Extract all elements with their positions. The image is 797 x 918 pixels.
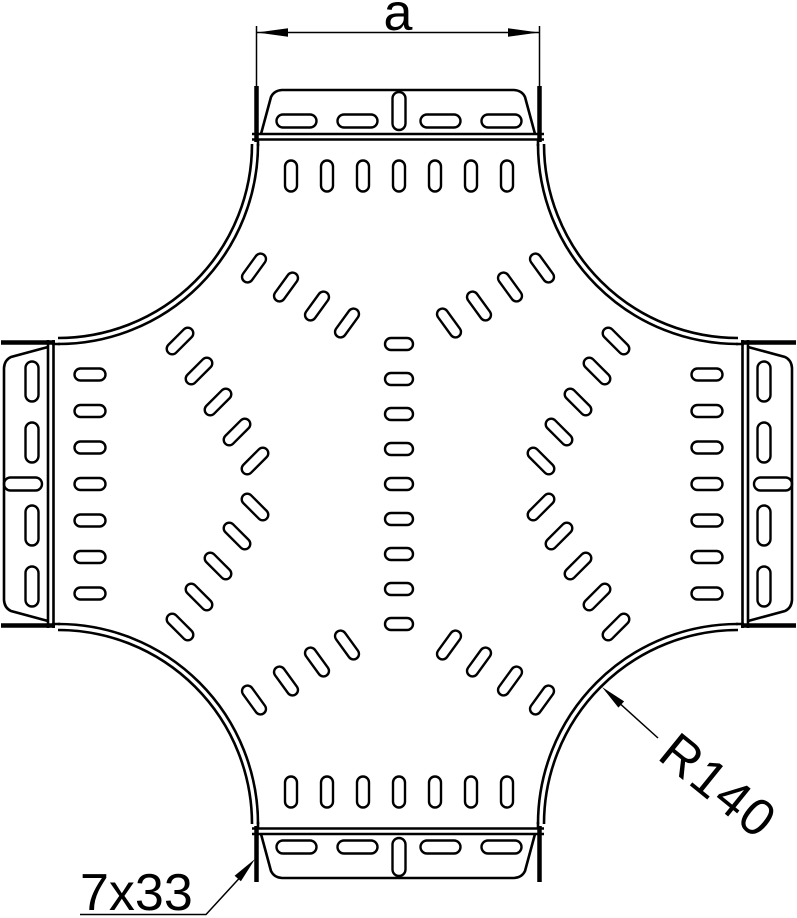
slot-size-label: 7x33: [80, 864, 193, 918]
dimension-a-label: a: [384, 0, 413, 42]
technical-drawing: a R140 7x33: [0, 0, 797, 918]
cable-tray-cross-piece-drawing: a R140 7x33: [0, 0, 797, 918]
